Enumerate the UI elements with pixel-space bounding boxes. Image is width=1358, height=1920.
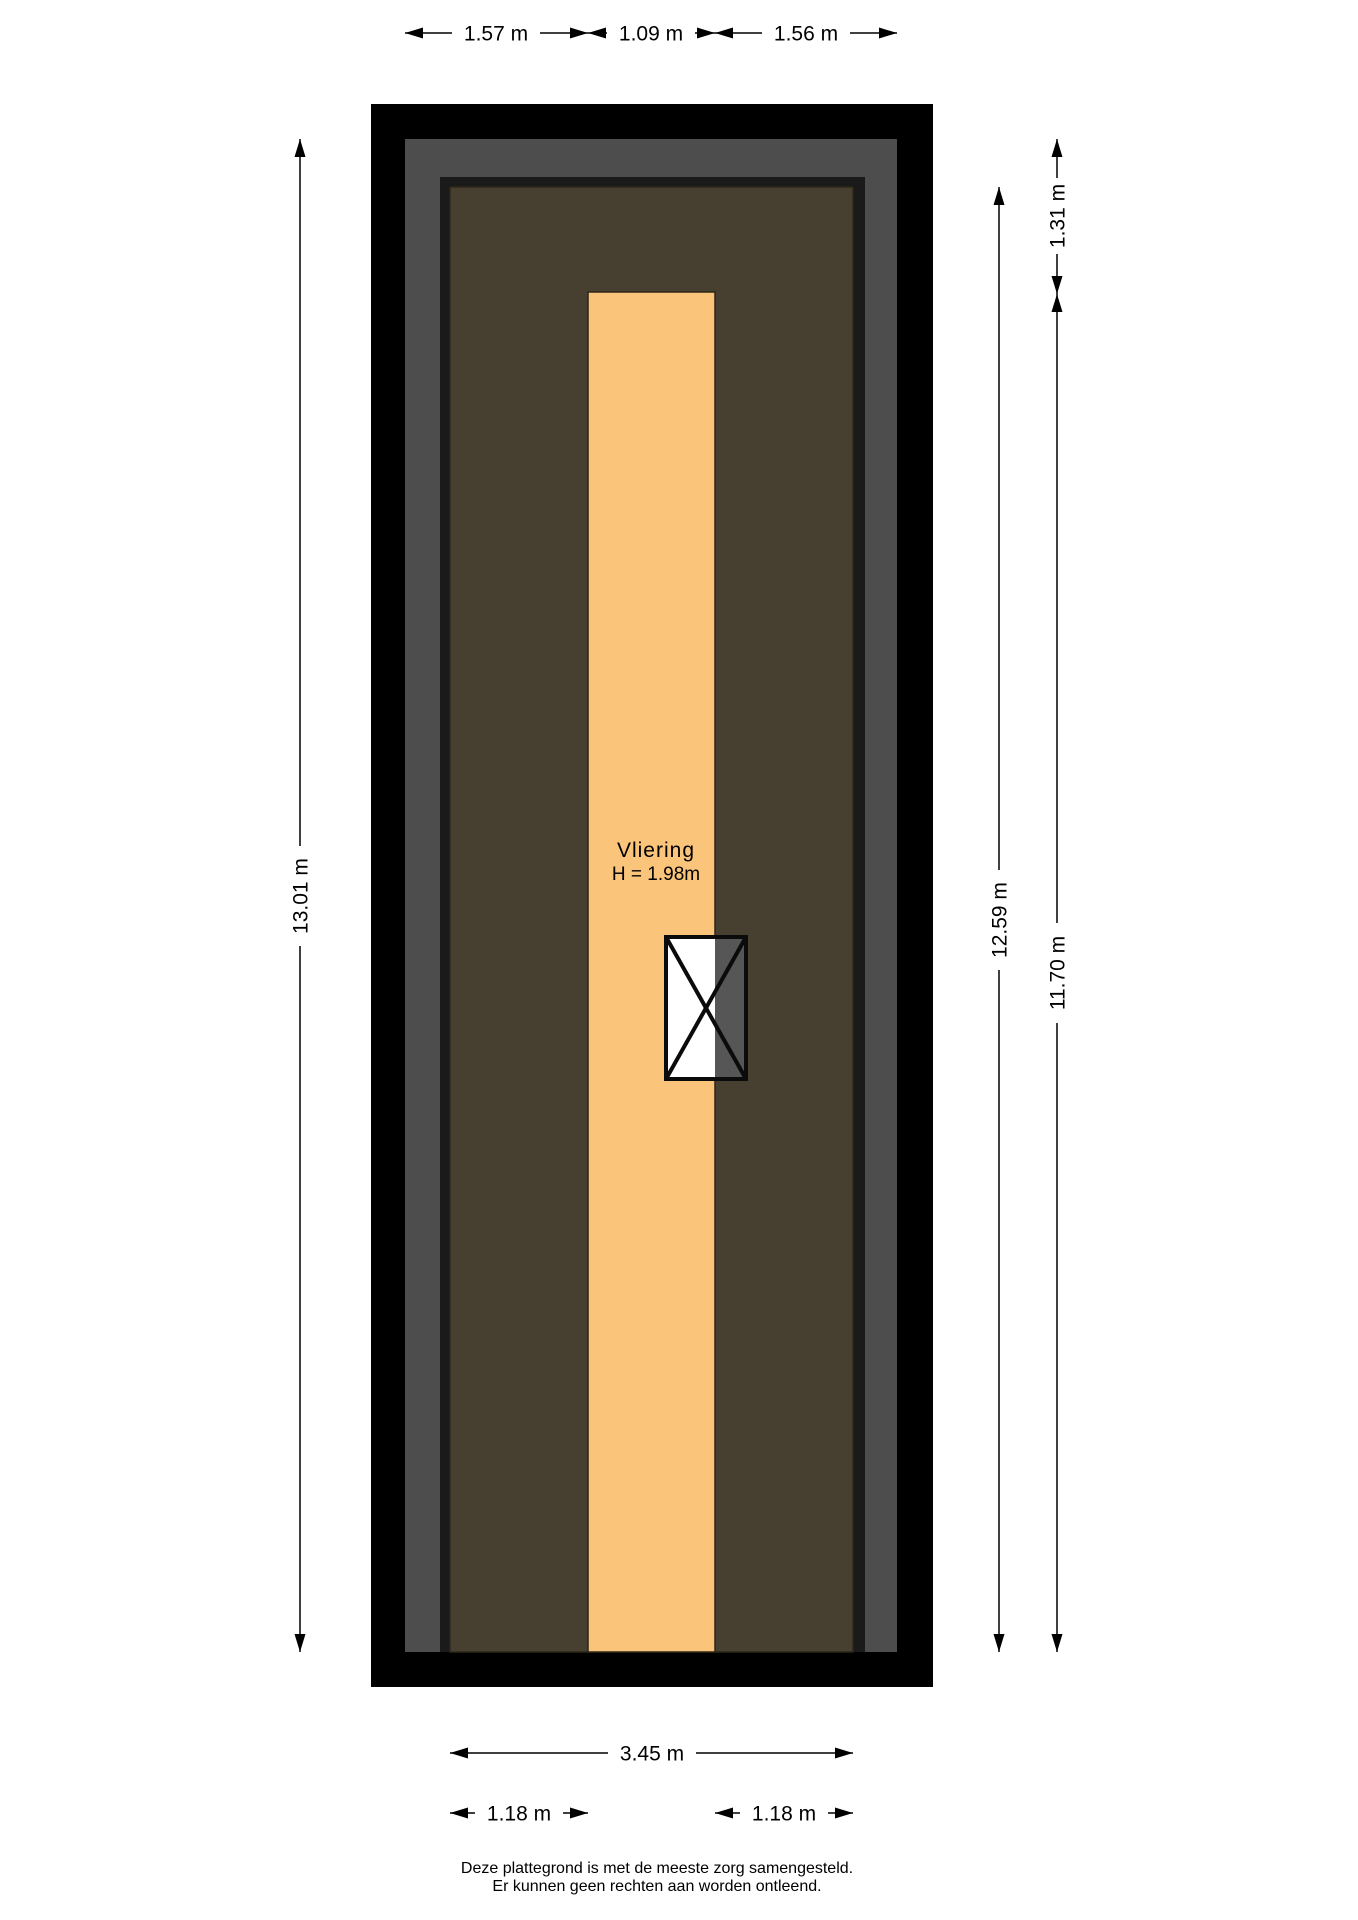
roof-window-symbol (666, 937, 746, 1079)
dim-label-top-right: 1.56 m (774, 23, 838, 46)
footer-line-2: Er kunnen geen rechten aan worden ontlee… (492, 1878, 821, 1895)
arrowhead (697, 28, 715, 39)
dim-label-bottom-width: 3.45 m (620, 1743, 684, 1766)
dim-label-right-top: 1.31 m (1047, 184, 1070, 248)
dim-label-top-middle: 1.09 m (619, 23, 683, 46)
attic-plan: Vliering H = 1.98m (371, 104, 933, 1687)
arrowhead-up (295, 139, 306, 157)
arrowhead-right (570, 1808, 588, 1819)
floorplan-svg: Vliering H = 1.98m 1.57 m 1.0 (0, 0, 1358, 1920)
arrowhead-down (295, 1634, 306, 1652)
dimension-bottom-split: 1.18 m 1.18 m (450, 1800, 853, 1826)
dim-label-right-floor: 12.59 m (989, 882, 1012, 958)
room-height-label: H = 1.98m (612, 864, 700, 885)
footer-line-1: Deze plattegrond is met de meeste zorg s… (461, 1860, 853, 1877)
arrowhead-left (450, 1748, 468, 1759)
floorplan-page: Vliering H = 1.98m 1.57 m 1.0 (0, 0, 1358, 1920)
dim-label-right-loft: 11.70 m (1047, 936, 1070, 1010)
dim-label-left-total: 13.01 m (290, 858, 313, 934)
arrowhead (1052, 276, 1063, 294)
arrowhead-up (994, 187, 1005, 205)
dim-label-bottom-left: 1.18 m (487, 1803, 551, 1826)
arrowhead-up (1052, 139, 1063, 157)
footer-disclaimer: Deze plattegrond is met de meeste zorg s… (461, 1860, 853, 1895)
room-name-label: Vliering (617, 839, 695, 862)
dim-label-bottom-right: 1.18 m (752, 1803, 816, 1826)
dimension-right-floor: 12.59 m (983, 187, 1013, 1652)
arrowhead-right (835, 1748, 853, 1759)
dimension-bottom-total: 3.45 m (450, 1740, 853, 1766)
arrowhead-down (994, 1634, 1005, 1652)
arrowhead-right (835, 1808, 853, 1819)
arrowhead (588, 28, 606, 39)
window-shaded-half (715, 937, 746, 1079)
arrowhead-left (450, 1808, 468, 1819)
dimension-right-chain: 1.31 m 11.70 m (1041, 139, 1071, 1652)
arrowhead-right (879, 28, 897, 39)
arrowhead (570, 28, 588, 39)
arrowhead-left (715, 1808, 733, 1819)
arrowhead (715, 28, 733, 39)
arrowhead-down (1052, 1634, 1063, 1652)
arrowhead-left (405, 28, 423, 39)
dim-label-top-left: 1.57 m (464, 23, 528, 46)
dimension-top-chain: 1.57 m 1.09 m 1.56 m (405, 20, 897, 46)
dimension-left-total: 13.01 m (284, 139, 314, 1652)
arrowhead (1052, 294, 1063, 312)
